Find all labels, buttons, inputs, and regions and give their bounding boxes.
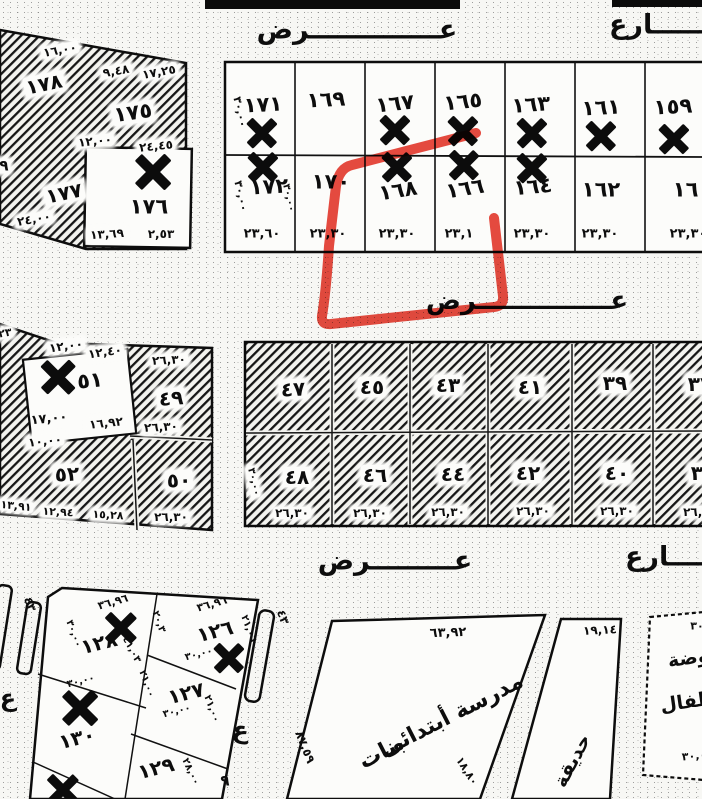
parcel-51: ٥١ <box>76 369 104 393</box>
dim: ٢٣,٣٠ <box>379 228 416 241</box>
parcel-161: ١٦١ <box>581 97 620 120</box>
street-bottom-ard-label: عـــــــــرض <box>318 548 473 575</box>
x-mark <box>447 148 481 182</box>
parcel-41: ٤١ <box>516 377 544 397</box>
dim: ٢,٥٣ <box>148 228 175 240</box>
x-mark <box>515 116 549 150</box>
dim: ٢٣,٣٠ <box>310 228 347 241</box>
parcel-45: ٤٥ <box>358 377 386 397</box>
parcel-46: ٤٦ <box>361 465 389 485</box>
x-mark <box>245 116 279 150</box>
x-mark <box>212 641 246 675</box>
parcel-49: ٤٩ <box>156 387 186 409</box>
dim: ٢٣,٦٠ <box>244 228 281 241</box>
parcel-162: ١٦٢ <box>582 180 620 201</box>
parcel-40: ٤٠ <box>603 463 631 483</box>
dim: ١٦,٩٢ <box>87 415 126 431</box>
parcel-39: ٣٩ <box>601 373 629 393</box>
dim: ١٥,٢٨ <box>90 509 126 522</box>
school-parcel-outline <box>287 615 545 799</box>
dim: ٢٣,٣٠ <box>670 228 702 241</box>
parcel-47: ٤٧ <box>278 378 307 399</box>
street-bottom-sharia-label: شــــــارع <box>625 544 702 571</box>
parcel-169: ١٦٩ <box>306 89 345 112</box>
dim: ٢٦,٣٠ <box>150 353 188 367</box>
street-median <box>0 584 12 670</box>
fragment-ain: ع <box>0 686 16 710</box>
parcel-160: ١٦٠ <box>673 180 702 201</box>
x-mark <box>378 113 412 147</box>
parcel-165: ١٦٥ <box>443 90 483 115</box>
dim: ٢٣,١ <box>445 228 474 241</box>
parcel-52: ٥٢ <box>52 463 81 484</box>
x-mark <box>446 114 480 148</box>
x-mark <box>60 688 100 728</box>
dim: ١٣,٦٩ <box>88 227 127 242</box>
parcel-175: ١٧٥ <box>111 100 156 127</box>
fragment: ٢٣ <box>0 326 15 340</box>
fragment: ٣٠ <box>690 621 702 632</box>
x-mark <box>133 152 173 192</box>
dim: ١٧,٠٠ <box>30 411 68 428</box>
parcel-50: ٥٠ <box>164 469 193 490</box>
parcel-37: ٣٧ <box>686 374 702 394</box>
school-dim-top: ٦٣,٩٢ <box>429 626 466 640</box>
dim: ٢٣,٣٠ <box>582 228 619 241</box>
parcel-48: ٤٨ <box>283 467 311 487</box>
dim: ١٢,٩٤ <box>40 506 76 519</box>
street-top-ard-label: عــــــــــــــرض <box>257 17 458 44</box>
parcel-171: ١٧١ <box>243 94 282 117</box>
kindergarten-label-line1: روضة <box>667 645 702 671</box>
dim: ٢٦,٣٠ <box>273 507 311 519</box>
street-middle-ard-label: عـــــــــــــــرض <box>426 288 628 314</box>
parcel-44: ٤٤ <box>439 464 467 484</box>
dim: ٢٦,٣٠ <box>351 507 389 519</box>
dim: ٢٦,٣٠ <box>152 511 190 523</box>
dim: ٢٦,٣٠ <box>142 420 180 434</box>
street-top-sharia-label: شــــــارع <box>609 12 702 39</box>
fragment: ٣٠,٠ <box>681 749 702 762</box>
dim: ٢٦,٣٠ <box>681 506 702 518</box>
parcel-163: ١٦٣ <box>511 93 551 117</box>
x-mark <box>103 610 139 646</box>
parcel-38: ٣٨ <box>689 463 702 483</box>
parcel-170: ١٧٠ <box>312 172 350 193</box>
dim: ١٢,٠٠ <box>76 133 115 149</box>
x-mark <box>657 122 691 156</box>
x-mark <box>39 358 77 396</box>
dim: ١٠,٠٠ <box>26 433 65 449</box>
x-mark <box>246 150 280 184</box>
x-mark <box>45 772 81 799</box>
dim: ٢٦,٣٠ <box>514 505 552 517</box>
fragment: ٩ <box>0 159 11 174</box>
parcel-43: ٤٣ <box>434 375 462 395</box>
dim: ٢٦,٣٠ <box>429 506 467 518</box>
street-edge-bar <box>205 0 460 9</box>
map-canvas: عــــــــــــــرضشــــــارععــــــــــــ… <box>0 0 702 799</box>
dim: ٢٣,٣٠ <box>514 228 551 241</box>
dim: ١٣,٩١ <box>0 499 34 514</box>
garden-dim: ١٩,١٤ <box>583 623 617 637</box>
dim: ٢٦,٣٠ <box>598 505 636 517</box>
parcel-42: ٤٢ <box>514 463 542 483</box>
x-mark <box>584 119 618 153</box>
street-edge-bar <box>612 0 702 7</box>
x-mark <box>380 150 414 184</box>
parcel-159: ١٥٩ <box>653 96 692 119</box>
parcel-176: ١٧٦ <box>130 197 168 218</box>
fragment-9: ٩ <box>220 774 229 789</box>
x-mark <box>515 151 549 185</box>
